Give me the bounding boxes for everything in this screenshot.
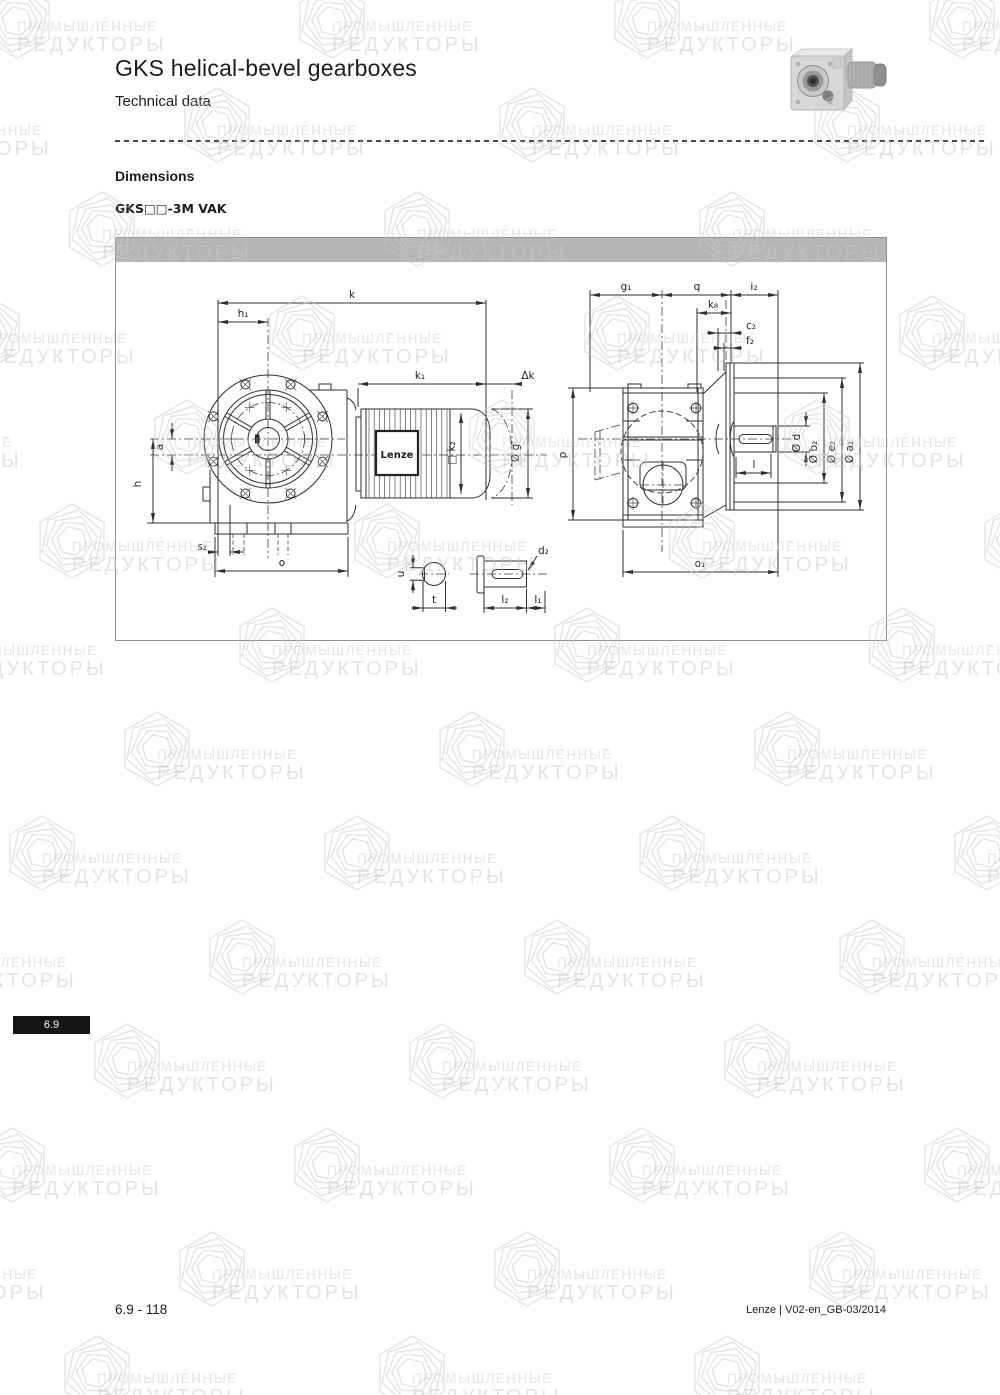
watermark: ПРОМЫШЛЕННЫЕРЕДУКТОРЫ <box>488 1228 788 1312</box>
watermark: ПРОМЫШЛЕННЫЕРЕДУКТОРЫ <box>688 1332 988 1395</box>
dim-label-e2: Ø e₂ <box>826 441 838 463</box>
dim-label-a: a <box>154 444 166 450</box>
dim-label-h: h <box>132 481 144 488</box>
dim-label-k: k <box>349 289 356 301</box>
dim-label-k1: k₁ <box>415 370 425 382</box>
watermark: ПРОМЫШЛЕННЫЕРЕДУКТОРЫ <box>0 396 133 480</box>
watermark: ПРОМЫШЛЕННЫЕРЕДУКТОРЫ <box>0 916 188 1000</box>
front-view-drawing: k h₁ a h <box>132 289 547 577</box>
watermark: ПРОМЫШЛЕННЫЕРЕДУКТОРЫ <box>0 1228 158 1312</box>
dim-label-g1: g₁ <box>621 281 632 293</box>
dim-label-l1: l₁ <box>534 594 541 606</box>
dimension-drawing: k h₁ a h <box>115 237 887 641</box>
watermark: ПРОМЫШЛЕННЫЕРЕДУКТОРЫ <box>203 916 503 1000</box>
watermark: ПРОМЫШЛЕННЫЕРЕДУКТОРЫ <box>603 1124 903 1208</box>
watermark: ПРОМЫШЛЕННЫЕРЕДУКТОРЫ <box>88 1020 388 1104</box>
dim-label-c2: c₂ <box>746 320 756 332</box>
watermark: ПРОМЫШЛЕННЫЕРЕДУКТОРЫ <box>803 1228 1000 1312</box>
motor-logo-text: Lenze <box>381 450 414 461</box>
watermark: ПРОМЫШЛЕННЫЕРЕДУКТОРЫ <box>718 1020 1000 1104</box>
section-heading: Dimensions <box>115 168 194 184</box>
watermark: ПРОМЫШЛЕННЫЕРЕДУКТОРЫ <box>173 1228 473 1312</box>
footer-document-id: Lenze | V02-en_GB-03/2014 <box>486 1304 886 1316</box>
watermark: ПРОМЫШЛЕННЫЕРЕДУКТОРЫ <box>948 812 1000 896</box>
watermark: ПРОМЫШЛЕННЫЕРЕДУКТОРЫ <box>178 84 478 168</box>
gearbox-product-photo <box>786 44 892 118</box>
dim-label-b2: Ø b₂ <box>808 441 820 463</box>
dim-label-q: q <box>694 281 701 293</box>
dim-label-f2: f₂ <box>746 335 754 347</box>
dim-label-h1: h₁ <box>238 308 249 320</box>
dim-label-s2: s₂ <box>197 541 207 553</box>
dim-label-k2: □ k₂ <box>446 441 458 465</box>
watermark: ПРОМЫШЛЕННЫЕРЕДУКТОРЫ <box>923 0 1000 64</box>
watermark: ПРОМЫШЛЕННЫЕРЕДУКТОРЫ <box>633 812 933 896</box>
watermark: ПРОМЫШЛЕННЫЕРЕДУКТОРЫ <box>433 708 733 792</box>
watermark: ПРОМЫШЛЕННЫЕРЕДУКТОРЫ <box>748 708 1000 792</box>
watermark: ПРОМЫШЛЕННЫЕРЕДУКТОРЫ <box>318 812 618 896</box>
shaft-keyway-notch <box>255 435 260 444</box>
dim-label-p: p <box>557 451 569 458</box>
watermark: ПРОМЫШЛЕННЫЕРЕДУКТОРЫ <box>0 1124 273 1208</box>
watermark: ПРОМЫШЛЕННЫЕРЕДУКТОРЫ <box>403 1020 703 1104</box>
watermark: ПРОМЫШЛЕННЫЕРЕДУКТОРЫ <box>288 1124 588 1208</box>
watermark: ПРОМЫШЛЕННЫЕРЕДУКТОРЫ <box>918 1124 1000 1208</box>
watermark: ПРОМЫШЛЕННЫЕРЕДУКТОРЫ <box>118 708 418 792</box>
chapter-tab: 6.9 <box>13 1016 90 1034</box>
page-subtitle: Technical data <box>115 93 211 110</box>
model-label: GKS□□-3M VAK <box>115 201 226 216</box>
dim-label-u: u <box>395 571 407 578</box>
dim-label-l: l <box>753 459 756 471</box>
page-title: GKS helical-bevel gearboxes <box>115 55 417 82</box>
watermark: ПРОМЫШЛЕННЫЕРЕДУКТОРЫ <box>893 292 1000 376</box>
dim-label-o: o <box>279 557 285 569</box>
dim-label-d: Ø d <box>791 434 803 452</box>
watermark: ПРОМЫШЛЕННЫЕРЕДУКТОРЫ <box>3 812 303 896</box>
page: GKS helical-bevel gearboxes Technical da… <box>0 0 1000 1395</box>
footer-page-number: 6.9 - 118 <box>115 1302 167 1317</box>
dim-label-dk: Δk <box>521 370 535 382</box>
dim-label-g: Ø g <box>510 444 522 462</box>
watermark: ПРОМЫШЛЕННЫЕРЕДУКТОРЫ <box>493 84 793 168</box>
watermark: ПРОМЫШЛЕННЫЕРЕДУКТОРЫ <box>833 916 1000 1000</box>
shaft-section-detail: u t d₂ l₂ l₁ <box>395 545 549 613</box>
watermark: ПРОМЫШЛЕННЫЕРЕДУКТОРЫ <box>978 500 1000 584</box>
watermark: ПРОМЫШЛЕННЫЕРЕДУКТОРЫ <box>373 1332 673 1395</box>
dim-label-o1: o₁ <box>695 558 706 570</box>
drawing-header-bar <box>115 237 887 262</box>
dim-label-d2: d₂ <box>538 545 549 557</box>
dim-label-a2: Ø a₂ <box>844 441 856 463</box>
watermark: ПРОМЫШЛЕННЫЕРЕДУКТОРЫ <box>58 1332 358 1395</box>
watermark: ПРОМЫШЛЕННЫЕРЕДУКТОРЫ <box>518 916 818 1000</box>
dashed-divider <box>115 140 985 142</box>
chapter-tab-label: 6.9 <box>44 1019 59 1031</box>
dim-label-i2: i₂ <box>750 281 757 293</box>
side-view-drawing: p l <box>557 281 864 577</box>
dim-label-l2: l₂ <box>501 594 508 606</box>
dim-label-t: t <box>432 594 436 606</box>
dim-label-k8: k₈ <box>708 299 718 311</box>
